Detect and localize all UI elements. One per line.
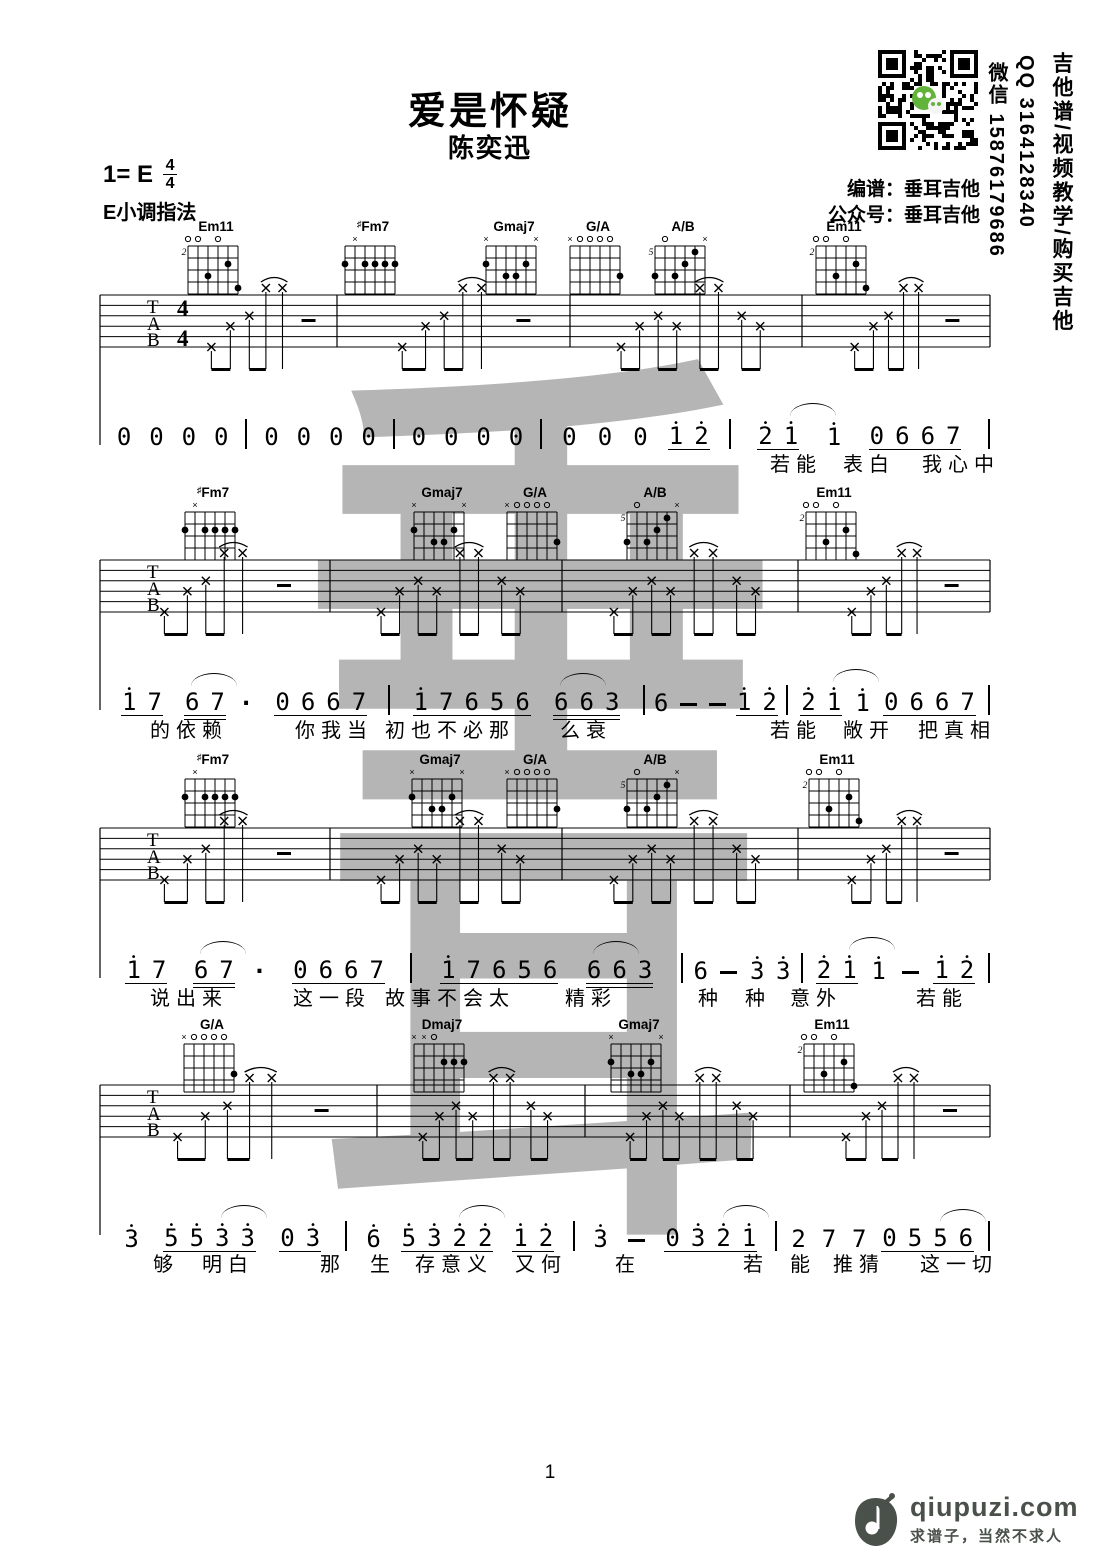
jianpu-note: 0 [263,424,279,450]
svg-text:×: × [411,500,416,510]
lyric: 生 [370,1248,396,1277]
jianpu-note: 2 [715,1225,731,1251]
jianpu-note: 0 [475,424,491,450]
jianpu-note: 1 [121,689,137,715]
site-slogan: 求谱子，当然不求人 [910,1525,1079,1546]
jianpu-note: 6 [934,689,950,715]
lyric: 种 [698,982,724,1011]
bar-line [988,953,990,983]
jianpu-note: 1 [783,423,799,449]
lyric: 若 [743,1248,769,1277]
svg-text:×: × [674,500,679,510]
jianpu-note: 0 [148,424,164,450]
chord-diagram-Em11: Em112 [808,218,878,311]
svg-text:5: 5 [621,781,626,791]
chord-diagram-A-B: A/B×5 [619,751,689,844]
measure: 612 [645,689,786,716]
jianpu-note: 3 [637,957,653,983]
jianpu-note: 0 [597,424,613,450]
beam-group: 21 [816,957,858,984]
lyric: 敞开 [843,714,895,743]
svg-text:2: 2 [810,248,815,258]
jianpu-note: 3 [749,958,765,984]
svg-text:×: × [533,234,538,244]
jianpu-note: 6 [514,689,530,715]
jianpu-note: 7 [209,689,225,715]
jianpu-line-system-3: 1767·06671765666363321112 [100,948,990,984]
jianpu-line-system-2: 1767·0667176566636122110667 [100,680,990,716]
lyric: 存意义 [415,1248,493,1277]
chord-diagram-G-A: G/A× [562,218,632,311]
dash-rest [902,971,919,974]
jianpu-note: 0 [292,957,308,983]
chord-diagram-Em11: Em112 [798,484,868,577]
jianpu-note: 7 [351,689,367,715]
jianpu-note: 6 [586,957,602,983]
jianpu-note: 6 [184,689,200,715]
beam-group: 17 [121,689,163,716]
lyric: 的依赖 [150,714,228,743]
site-url: qiupuzi.com [910,1492,1079,1522]
svg-text:B: B [147,863,160,884]
jianpu-note: 0 [411,424,427,450]
beam-group: 0667 [883,689,976,716]
chord-diagram-A-B: A/B×5 [619,484,689,577]
svg-text:Gmaj7: Gmaj7 [419,752,460,767]
chord-diagram-G-A: G/A× [499,484,569,577]
jianpu-note: 0 [632,424,648,450]
jianpu-note: 0 [561,424,577,450]
measure: 0000 [395,424,540,450]
jianpu-note: 7 [151,957,167,983]
jianpu-note: 1 [841,957,857,983]
svg-text:Em11: Em11 [819,752,855,767]
beam-group: 663 [553,689,620,716]
measure: 17656663 [390,689,642,716]
lyric: 能 [790,1248,816,1277]
jianpu-note: 6 [491,957,507,983]
beam-group: 12 [933,957,975,984]
jianpu-note: 6 [894,423,910,449]
dash-rest [709,703,726,706]
jianpu-note: 6 [553,689,569,715]
chord-diagram-Gmaj7: Gmaj7×× [478,218,548,311]
measure: 00012 [542,423,729,450]
jianpu-note: 0 [274,689,290,715]
dash-rest [628,1239,645,1242]
jianpu-note: 1 [125,957,141,983]
lyric: 在 [615,1248,641,1277]
lyric: 说出来 [150,982,228,1011]
svg-text:×: × [352,234,357,244]
jianpu-note: 0 [360,424,376,450]
svg-text:B: B [147,330,160,351]
measure: 0000 [247,424,392,450]
svg-text:×: × [483,234,488,244]
jianpu-note: 6 [908,689,924,715]
jianpu-note: 3 [775,958,791,984]
jianpu-note: 0 [279,1225,295,1251]
lyric: 我心中 [922,448,1000,477]
jianpu-note: 6 [318,957,334,983]
jianpu-note: 3 [305,1225,321,1251]
time-signature: 4 4 [163,158,177,191]
svg-text:×: × [411,1032,416,1042]
svg-text:A/B: A/B [643,752,667,767]
jianpu-note: 5 [516,957,532,983]
svg-text:Em11: Em11 [816,485,852,500]
page-title: 爱是怀疑 [290,80,690,135]
site-logo: qiupuzi.com 求谱子，当然不求人 [852,1492,1079,1548]
jianpu-note: 7 [466,957,482,983]
svg-text:Em11: Em11 [826,219,862,234]
chord-diagram-G-A: G/A× [176,1016,246,1109]
svg-text:B: B [147,1120,160,1141]
jianpu-line-system-1: 000000000000000122110667 [100,414,990,450]
side-text-services: 吉他谱/视频教学/购买吉他 [1046,52,1076,334]
lyric: 这一段 [293,982,371,1011]
svg-text:2: 2 [182,248,187,258]
lyric: 若能 [770,714,822,743]
page-number: 1 [0,1462,1100,1484]
svg-text:Dmaj7: Dmaj7 [422,1017,463,1032]
svg-text:♯Fm7: ♯Fm7 [197,485,229,500]
jianpu-note: 6 [300,689,316,715]
bar-line [988,1221,990,1251]
beam-group: 17 [125,957,167,984]
measure: 2110667 [788,689,988,716]
beam-group: 0667 [292,957,385,984]
beam-group: 17656 [440,957,558,984]
beam-group: 0667 [274,689,367,716]
lyric: 种 [745,982,771,1011]
jianpu-note: 1 [826,689,842,715]
jianpu-note: 6 [193,957,209,983]
sheet-page: { "header": { "title": "爱是怀疑", "artist":… [0,0,1100,1556]
lyric: 推猜 [833,1248,885,1277]
beam-group: 12 [736,689,778,716]
lyric: 又何 [515,1248,567,1277]
measure: 1767·0667 [100,957,410,984]
chord-diagram-Gmaj7: Gmaj7×× [406,484,476,577]
jianpu-note: 6 [343,957,359,983]
beam-group: 21 [800,689,842,716]
jianpu-note: 1 [440,957,456,983]
svg-text:G/A: G/A [586,219,610,234]
jianpu-note: 6 [542,957,558,983]
jianpu-note: 7 [146,689,162,715]
measure: 1767·0667 [100,689,388,716]
svg-text:×: × [504,767,509,777]
artist-name: 陈奕迅 [290,128,690,165]
lyric: 若能 [770,448,822,477]
lyric: 你我当 [295,714,373,743]
chord-diagram-Gmaj7: Gmaj7×× [603,1016,673,1109]
svg-text:×: × [459,767,464,777]
lyric: 表白 [843,448,895,477]
svg-text:×: × [421,1032,426,1042]
arranger-credit: 编谱：垂耳吉他 [640,174,980,201]
jianpu-note: 1 [854,690,870,716]
beam-group: 663 [586,957,653,984]
measure: 633 [683,958,801,984]
augmentation-dot: · [252,958,266,984]
beam-group: 67 [193,957,235,984]
svg-text:2: 2 [800,514,805,524]
svg-text:×: × [567,234,572,244]
jianpu-note: 6 [578,689,594,715]
jianpu-note: 6 [611,957,627,983]
dash-rest [720,971,737,974]
jianpu-note: 2 [959,957,975,983]
jianpu-note: 0 [869,423,885,449]
jianpu-note: 0 [116,424,132,450]
jianpu-note: 7 [218,957,234,983]
wechat-qr-code [878,50,978,155]
svg-text:A/B: A/B [643,485,667,500]
jianpu-note: 0 [664,1225,680,1251]
svg-text:B: B [147,595,160,616]
jianpu-note: 0 [328,424,344,450]
chord-diagram-Em11: Em112 [180,218,250,311]
jianpu-note: 2 [757,423,773,449]
svg-text:×: × [658,1032,663,1042]
chord-diagram-A-B: A/B×5 [647,218,717,311]
jianpu-note: 2 [800,689,816,715]
jianpu-note: 0 [508,424,524,450]
jianpu-note: 3 [123,1226,139,1252]
svg-text:×: × [608,1032,613,1042]
svg-text:♯Fm7: ♯Fm7 [357,219,389,234]
beam-group: 17656 [413,689,531,716]
lyric: 把真相 [918,714,996,743]
jianpu-note: 6 [653,690,669,716]
chord-diagram-sFm7: ♯Fm7× [177,484,247,577]
jianpu-note: 6 [920,423,936,449]
chord-diagram-G-A: G/A× [499,751,569,844]
jianpu-note: 3 [690,1225,706,1251]
jianpu-note: 1 [668,423,684,449]
jianpu-note: 7 [945,423,961,449]
jianpu-line-system-4: 35533036532212303212770556 [100,1216,990,1252]
lyric: 精彩 [565,982,617,1011]
jianpu-note: 7 [369,957,385,983]
pick-note-icon [852,1492,902,1548]
jianpu-note: 0 [443,424,459,450]
dash-rest [680,703,697,706]
svg-text:×: × [504,500,509,510]
jianpu-note: 1 [933,957,949,983]
beam-group: 03 [279,1225,321,1252]
side-text-qq: QQ 3164128340 [1014,55,1037,229]
measure: 0000 [100,424,245,450]
svg-text:G/A: G/A [523,485,547,500]
measure: 21112 [803,957,988,984]
svg-text:5: 5 [621,514,626,524]
beam-group: 67 [184,689,226,716]
svg-text:×: × [192,500,197,510]
svg-text:G/A: G/A [523,752,547,767]
lyric: 意外 [790,982,842,1011]
chord-diagram-Em11: Em112 [796,1016,866,1109]
bar-line [988,419,990,449]
jianpu-note: 1 [413,689,429,715]
jianpu-note: 2 [761,689,777,715]
bar-line [988,685,990,715]
beam-group: 21 [757,423,799,450]
svg-text:2: 2 [798,1046,803,1056]
jianpu-note: 6 [692,958,708,984]
svg-text:×: × [192,767,197,777]
jianpu-note: 6 [463,689,479,715]
jianpu-note: 0 [213,424,229,450]
svg-text:Gmaj7: Gmaj7 [618,1017,659,1032]
svg-text:Em11: Em11 [814,1017,850,1032]
chord-diagram-Dmaj7: Dmaj7×× [406,1016,476,1109]
key-label: 1= E [103,161,153,189]
jianpu-note: 0 [181,424,197,450]
chord-diagram-Em11: Em112 [801,751,871,844]
svg-text:A/B: A/B [671,219,695,234]
lyric: 么衰 [560,714,612,743]
jianpu-note: 0 [883,689,899,715]
svg-text:Gmaj7: Gmaj7 [493,219,534,234]
jianpu-note: 0 [296,424,312,450]
beam-group: 12 [668,423,710,450]
jianpu-note: 5 [489,689,505,715]
svg-text:×: × [181,1032,186,1042]
svg-text:2: 2 [803,781,808,791]
jianpu-note: 2 [816,957,832,983]
svg-text:4: 4 [177,326,189,351]
chord-diagram-Gmaj7: Gmaj7×× [404,751,474,844]
lyric: 够 [153,1248,179,1277]
jianpu-note: 3 [592,1226,608,1252]
measure: 17656663 [412,957,680,984]
svg-text:×: × [674,767,679,777]
svg-text:Em11: Em11 [198,219,234,234]
lyric: 故事不会太 [385,982,515,1011]
jianpu-note: 3 [604,689,620,715]
chord-diagram-sFm7: ♯Fm7× [177,751,247,844]
lyric: 初也不必那 [385,714,515,743]
jianpu-note: 1 [736,689,752,715]
jianpu-note: 2 [693,423,709,449]
svg-text:×: × [702,234,707,244]
jianpu-note: 7 [438,689,454,715]
svg-text:G/A: G/A [200,1017,224,1032]
lyric: 这一切 [920,1248,998,1277]
side-text-wechat: 微信 15876179686 [982,62,1011,258]
lyric: 明白 [202,1248,254,1277]
beam-group: 0667 [869,423,962,450]
key-signature: 1= E 4 4 [103,158,177,191]
svg-text:♯Fm7: ♯Fm7 [197,752,229,767]
lyric: 若能 [916,982,968,1011]
measure: 2110667 [731,423,988,450]
jianpu-note: 1 [826,424,842,450]
augmentation-dot: · [239,690,253,716]
lyric: 那 [320,1248,346,1277]
svg-text:×: × [461,500,466,510]
svg-text:Gmaj7: Gmaj7 [421,485,462,500]
jianpu-note: 6 [325,689,341,715]
jianpu-note: 7 [959,689,975,715]
chord-diagram-sFm7: ♯Fm7× [337,218,407,311]
jianpu-note: 1 [870,958,886,984]
svg-text:5: 5 [649,248,654,258]
svg-text:×: × [409,767,414,777]
